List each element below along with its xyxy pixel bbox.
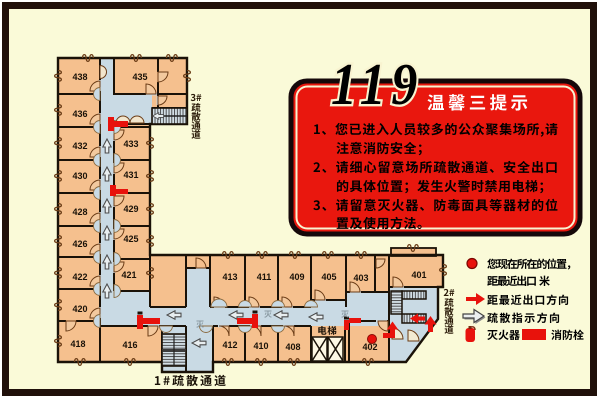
svg-text:421: 421 — [121, 270, 136, 280]
svg-text:409: 409 — [289, 272, 304, 282]
svg-text:418: 418 — [70, 339, 85, 349]
svg-text:412: 412 — [222, 340, 237, 350]
svg-text:413: 413 — [222, 272, 237, 282]
svg-text:435: 435 — [132, 72, 147, 82]
svg-text:408: 408 — [285, 342, 300, 352]
svg-text:405: 405 — [321, 272, 336, 282]
svg-text:432: 432 — [72, 141, 87, 151]
svg-text:436: 436 — [72, 109, 87, 119]
svg-text:431: 431 — [123, 170, 138, 180]
svg-text:420: 420 — [72, 304, 87, 314]
svg-text:401: 401 — [411, 270, 426, 280]
svg-text:411: 411 — [257, 272, 272, 282]
svg-text:426: 426 — [72, 239, 87, 249]
svg-text:430: 430 — [72, 171, 87, 181]
svg-text:416: 416 — [122, 340, 137, 350]
svg-text:422: 422 — [72, 272, 87, 282]
svg-text:429: 429 — [123, 204, 138, 214]
svg-text:428: 428 — [72, 207, 87, 217]
svg-text:410: 410 — [253, 341, 268, 351]
svg-text:425: 425 — [123, 234, 138, 244]
svg-text:438: 438 — [72, 72, 87, 82]
svg-text:119: 119 — [331, 52, 423, 118]
svg-text:403: 403 — [353, 273, 368, 283]
svg-text:433: 433 — [123, 139, 138, 149]
